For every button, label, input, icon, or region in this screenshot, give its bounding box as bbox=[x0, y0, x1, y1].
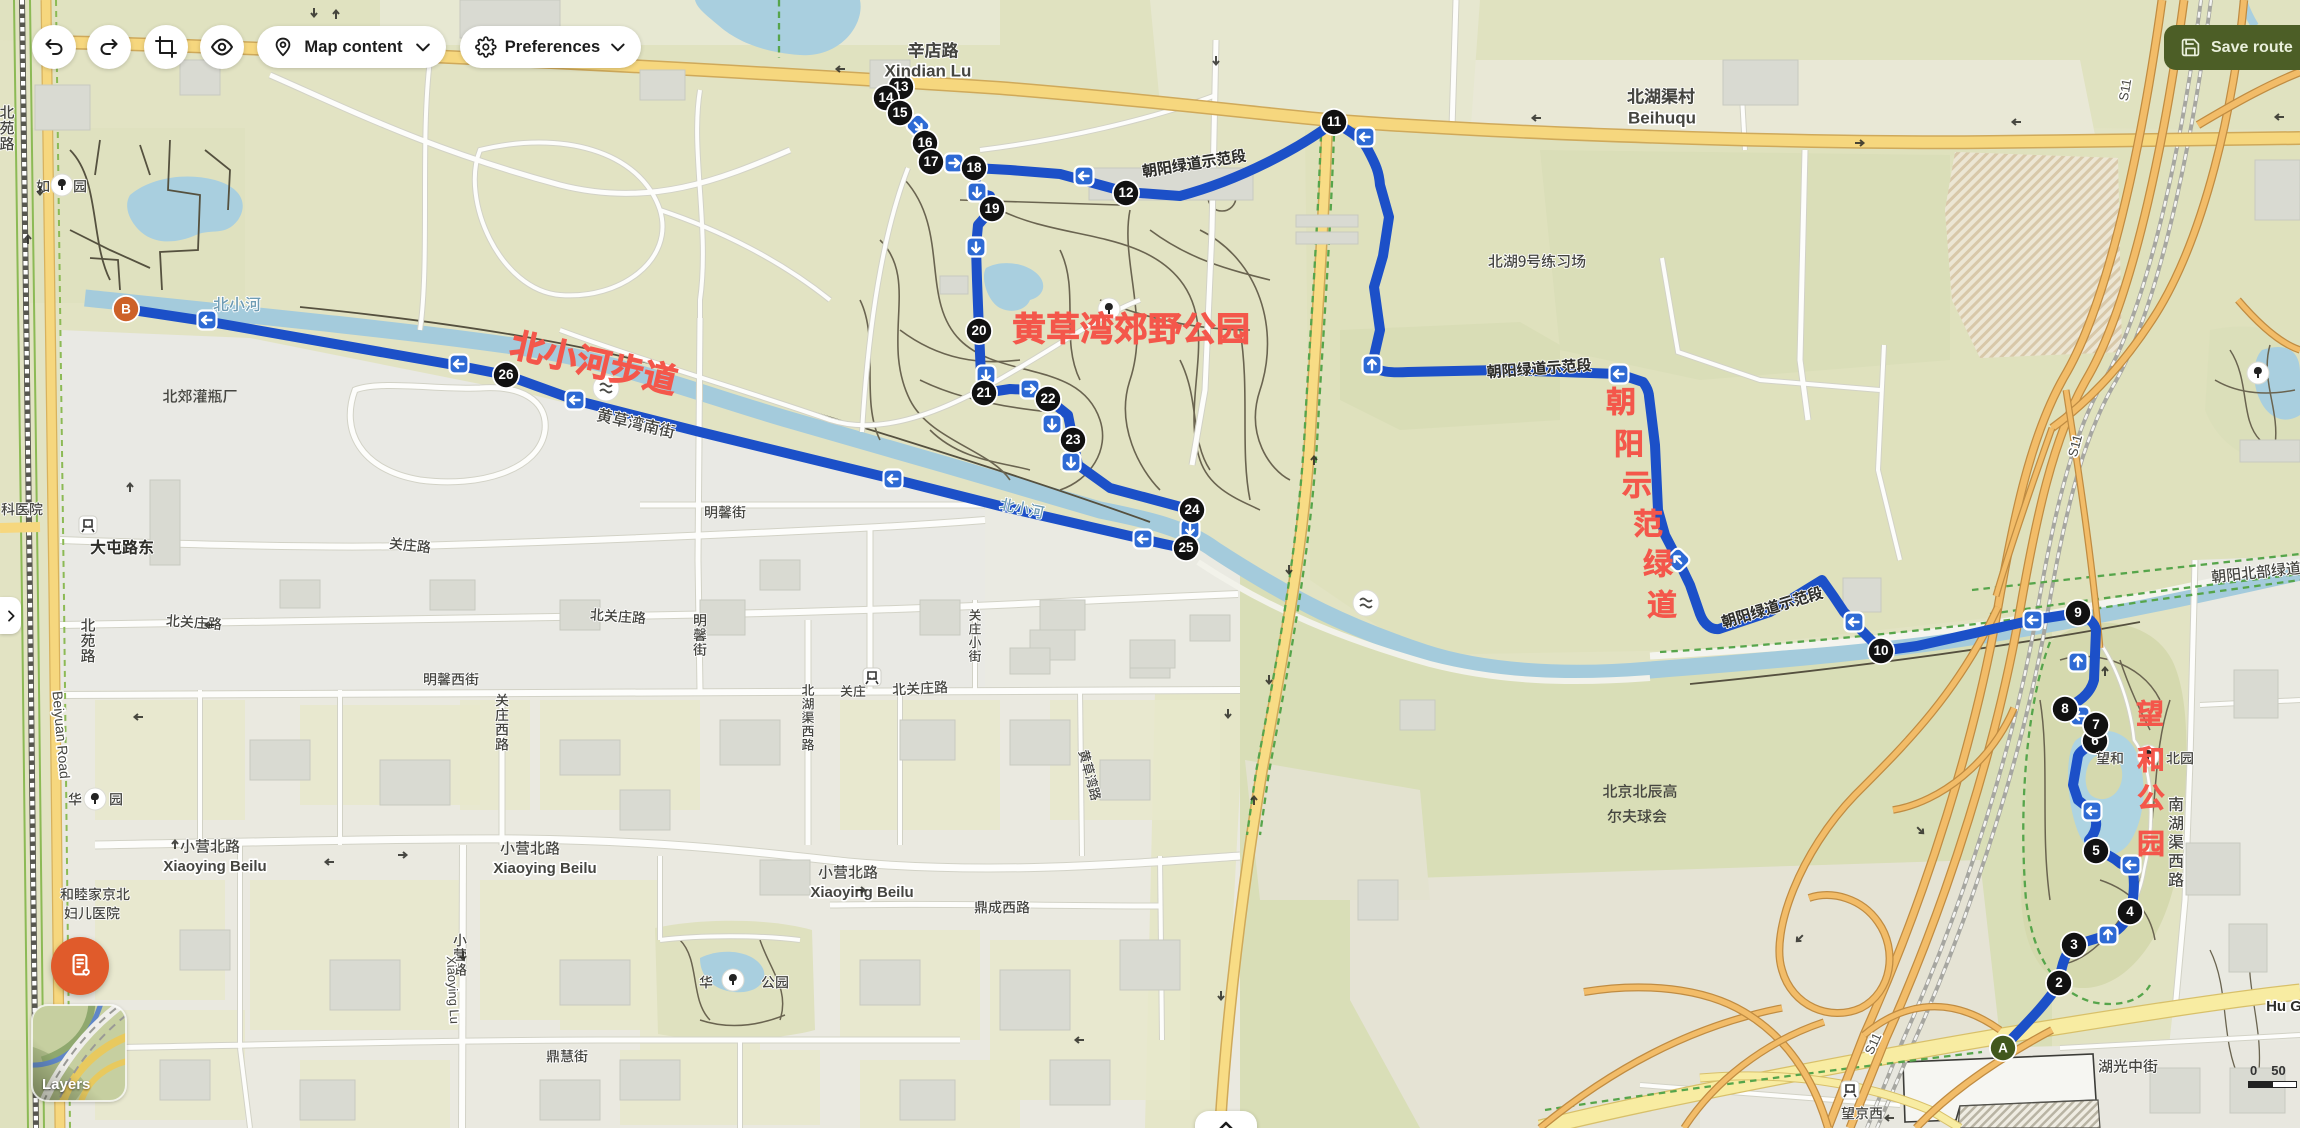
svg-text:7: 7 bbox=[2092, 717, 2100, 732]
svg-text:17: 17 bbox=[923, 154, 938, 169]
svg-text:12: 12 bbox=[1118, 185, 1133, 200]
svg-text:21: 21 bbox=[976, 385, 992, 400]
svg-text:19: 19 bbox=[984, 201, 999, 216]
svg-text:Beihuqu: Beihuqu bbox=[1628, 108, 1696, 127]
svg-text:15: 15 bbox=[892, 105, 908, 120]
svg-text:22: 22 bbox=[1040, 391, 1055, 406]
svg-text:2: 2 bbox=[2055, 975, 2063, 990]
svg-text:26: 26 bbox=[498, 367, 514, 382]
svg-text:8: 8 bbox=[2061, 701, 2069, 716]
svg-text:Xindian Lu: Xindian Lu bbox=[885, 61, 972, 80]
svg-text:23: 23 bbox=[1065, 432, 1081, 447]
svg-text:20: 20 bbox=[971, 323, 986, 338]
svg-text:18: 18 bbox=[966, 160, 982, 175]
svg-text:Xiaoying Beilu: Xiaoying Beilu bbox=[493, 860, 596, 877]
svg-text:B: B bbox=[121, 302, 131, 317]
svg-text:5: 5 bbox=[2092, 843, 2100, 858]
svg-text:Hu G: Hu G bbox=[2266, 998, 2300, 1015]
svg-text:A: A bbox=[1998, 1041, 2008, 1056]
svg-text:24: 24 bbox=[1184, 502, 1200, 517]
svg-text:Xiaoying Beilu: Xiaoying Beilu bbox=[163, 858, 266, 875]
svg-text:10: 10 bbox=[1873, 643, 1888, 658]
svg-text:4: 4 bbox=[2126, 904, 2134, 919]
svg-text:16: 16 bbox=[917, 135, 933, 150]
svg-text:11: 11 bbox=[1327, 114, 1342, 129]
svg-text:25: 25 bbox=[1178, 540, 1194, 555]
svg-text:9: 9 bbox=[2074, 605, 2082, 620]
svg-text:3: 3 bbox=[2070, 937, 2078, 952]
